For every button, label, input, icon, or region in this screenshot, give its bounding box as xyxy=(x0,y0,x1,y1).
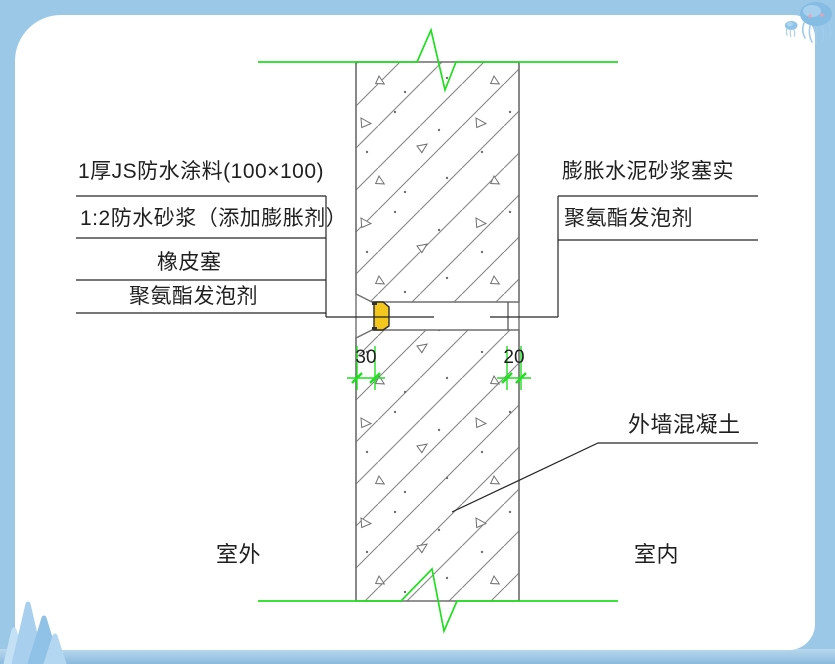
label-rubber-plug: 橡皮塞 xyxy=(157,251,222,275)
label-polyurethane-foam-right: 聚氨酯发泡剂 xyxy=(564,207,693,231)
wall-joint-detail-drawing xyxy=(0,0,835,664)
wall-upper-block xyxy=(356,62,519,302)
decorative-frame: 1厚JS防水涂料(100×100) 1:2防水砂浆（添加膨胀剂） 橡皮塞 聚氨酯… xyxy=(0,0,835,664)
dimension-text-30: 30 xyxy=(354,347,378,369)
rubber-plug-shape xyxy=(372,302,389,331)
label-waterproof-mortar: 1:2防水砂浆（添加膨胀剂） xyxy=(80,207,347,231)
label-js-waterproof-coating: 1厚JS防水涂料(100×100) xyxy=(78,160,324,184)
label-polyurethane-foam-left: 聚氨酯发泡剂 xyxy=(129,285,258,309)
label-expansion-cement-mortar: 膨胀水泥砂浆塞实 xyxy=(562,160,734,184)
dimension-text-20: 20 xyxy=(502,347,526,369)
label-indoor: 室内 xyxy=(634,542,679,567)
label-outdoor: 室外 xyxy=(216,542,261,567)
label-exterior-wall-concrete: 外墙混凝土 xyxy=(628,412,741,437)
jellyfish-icon xyxy=(770,0,835,60)
wall-lower-block xyxy=(356,330,519,601)
crystal-icon xyxy=(0,596,75,664)
